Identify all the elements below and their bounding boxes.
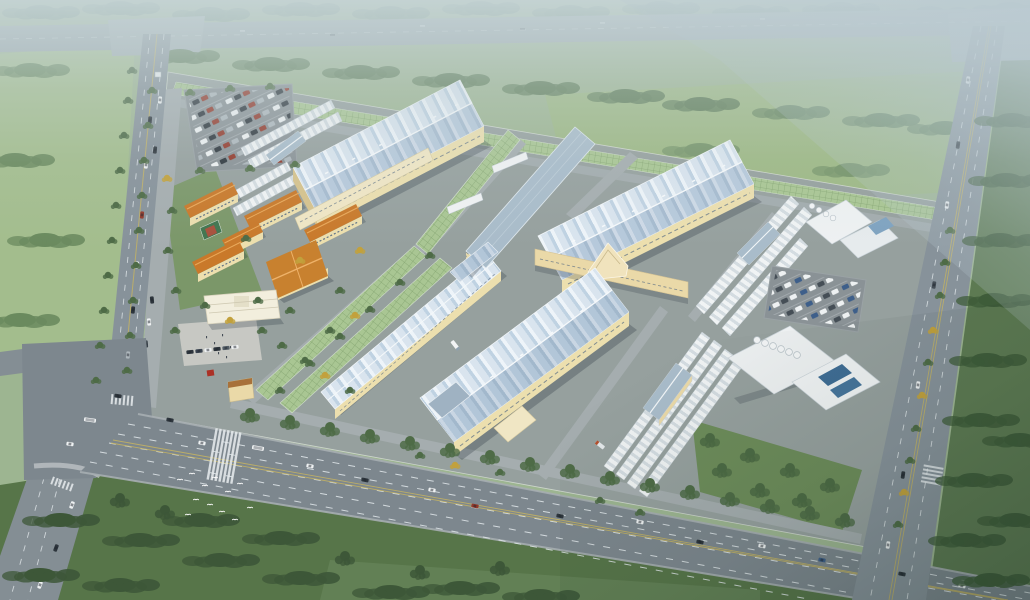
industrial-park-rendering bbox=[0, 0, 1030, 600]
aerial-rendering-stage bbox=[0, 0, 1030, 600]
gate-sign bbox=[207, 369, 215, 376]
admin-building bbox=[204, 290, 284, 330]
